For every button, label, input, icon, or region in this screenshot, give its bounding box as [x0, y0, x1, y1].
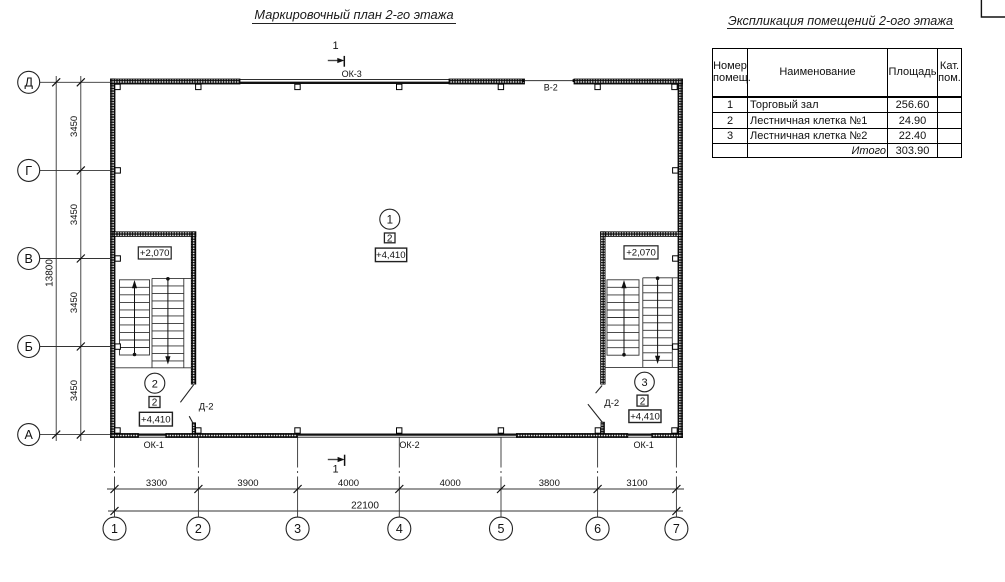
- svg-text:ОК-2: ОК-2: [399, 440, 419, 450]
- svg-text:4000: 4000: [338, 478, 359, 489]
- svg-text:1: 1: [111, 522, 118, 536]
- svg-text:2: 2: [152, 379, 158, 391]
- svg-text:ОК-1: ОК-1: [633, 440, 653, 450]
- svg-text:Г: Г: [25, 164, 32, 178]
- svg-text:3450: 3450: [69, 204, 80, 225]
- svg-text:Д-2: Д-2: [604, 398, 619, 409]
- svg-text:+2,070: +2,070: [626, 248, 656, 259]
- svg-text:ОК-1: ОК-1: [144, 440, 164, 450]
- svg-text:3900: 3900: [237, 478, 258, 489]
- svg-text:2: 2: [640, 396, 646, 407]
- svg-text:22100: 22100: [351, 501, 379, 512]
- svg-text:+2,070: +2,070: [140, 248, 170, 259]
- svg-text:А: А: [25, 428, 34, 442]
- svg-text:7: 7: [673, 522, 680, 536]
- svg-text:3450: 3450: [69, 292, 80, 313]
- svg-text:1: 1: [332, 464, 338, 476]
- svg-text:Д-2: Д-2: [199, 402, 214, 413]
- svg-text:6: 6: [594, 522, 601, 536]
- svg-text:3: 3: [294, 522, 301, 536]
- svg-text:2: 2: [387, 233, 393, 244]
- svg-text:4000: 4000: [440, 478, 461, 489]
- svg-text:13800: 13800: [45, 259, 56, 287]
- svg-text:1: 1: [387, 215, 393, 227]
- svg-text:+4,410: +4,410: [630, 412, 660, 423]
- svg-text:3300: 3300: [146, 478, 167, 489]
- svg-text:1: 1: [332, 40, 338, 52]
- svg-text:3100: 3100: [626, 478, 647, 489]
- svg-text:3800: 3800: [539, 478, 560, 489]
- svg-text:ОК-3: ОК-3: [342, 69, 362, 79]
- svg-text:5: 5: [498, 522, 505, 536]
- svg-text:4: 4: [396, 522, 403, 536]
- svg-text:Б: Б: [25, 340, 33, 354]
- svg-text:В: В: [25, 252, 33, 266]
- svg-text:В-2: В-2: [544, 83, 558, 93]
- svg-text:+4,410: +4,410: [376, 250, 406, 261]
- svg-text:3450: 3450: [69, 380, 80, 401]
- svg-text:3450: 3450: [69, 116, 80, 137]
- svg-text:2: 2: [195, 522, 202, 536]
- svg-text:2: 2: [152, 398, 158, 409]
- svg-text:+4,410: +4,410: [141, 415, 171, 426]
- svg-text:Д: Д: [24, 76, 33, 90]
- svg-text:3: 3: [641, 377, 647, 389]
